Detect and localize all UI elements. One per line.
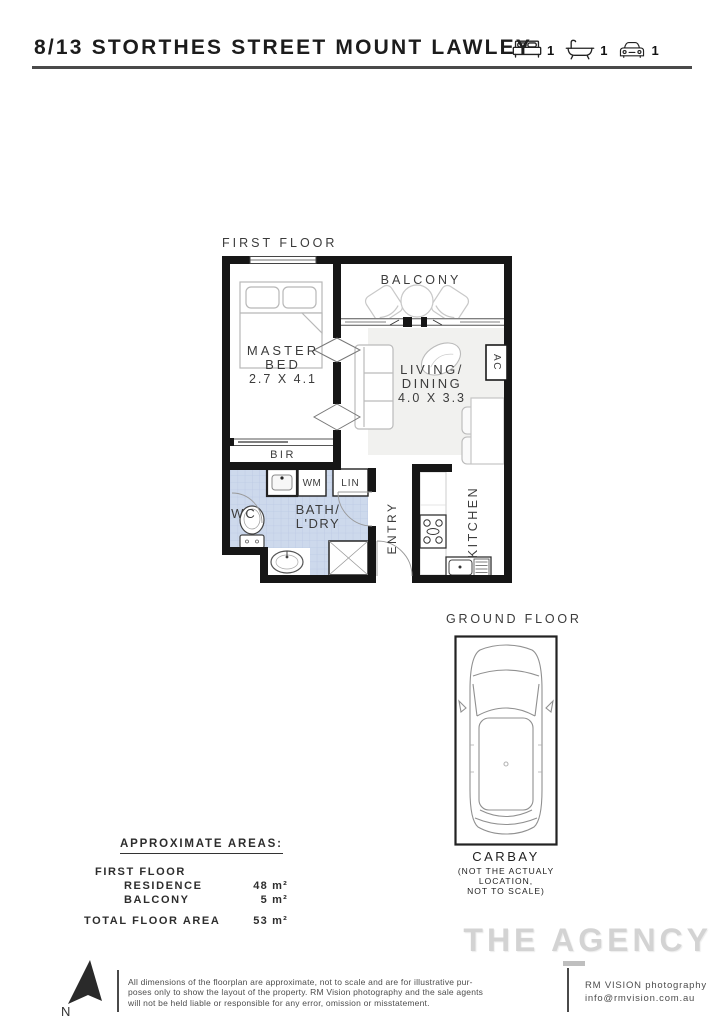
bir-sliding-door [234, 439, 333, 446]
credit-line-2: info@rmvision.com.au [585, 992, 707, 1005]
north-arrow-icon: N [58, 956, 122, 1020]
living-label-2: DINING [402, 376, 463, 391]
footer-divider-left [117, 970, 119, 1012]
bedroom-window [250, 257, 316, 264]
feature-icons-row: 1 1 1 [512, 37, 665, 63]
area-row-first-floor: FIRST FLOOR [95, 866, 186, 878]
car-top-view [459, 645, 553, 834]
balcony-sliding-doors [341, 317, 504, 327]
bath-icon [565, 38, 595, 62]
car-icon [618, 38, 646, 62]
carbay-note-line3: NOT TO SCALE) [430, 886, 582, 896]
north-label: N [61, 1004, 70, 1019]
carbay-diagram [448, 628, 568, 850]
first-floor-plan: AC BALCONY MASTER BED 2.7 X 4.1 LIVING/ … [218, 252, 516, 592]
ac-label: AC [491, 354, 502, 371]
bir-label: BIR [270, 449, 296, 461]
dining-set [462, 398, 504, 464]
floorplan-page: 8/13 STORTHES STREET MOUNT LAWLEY 1 1 [0, 0, 725, 1024]
carbay-note-line1: (NOT THE ACTUALY [430, 866, 582, 876]
master-bed-label-2: BED [265, 357, 301, 372]
shower [329, 541, 368, 575]
disclaimer-line-2: poses only to show the layout of the pro… [128, 987, 483, 997]
sofa-furniture [355, 345, 393, 429]
area-row-residence: RESIDENCE [124, 880, 203, 892]
vanity-basin [268, 548, 310, 575]
entry-label: ENTRY [385, 502, 399, 555]
disclaimer-line-1: All dimensions of the floorplan are appr… [128, 977, 483, 987]
agency-logo-underline [563, 961, 585, 966]
wc-label: WC [231, 506, 257, 521]
car-count: 1 [651, 43, 658, 58]
credit-line-1: RM VISION photography [585, 979, 707, 992]
stove-cooktop [420, 515, 446, 548]
first-floor-label: FIRST FLOOR [222, 236, 337, 250]
wm-label: WM [303, 478, 322, 489]
lin-label: LIN [341, 478, 360, 489]
area-row-total: TOTAL FLOOR AREA [84, 915, 220, 927]
areas-heading: APPROXIMATE AREAS: [120, 838, 283, 854]
ac-unit: AC [486, 345, 507, 380]
photography-credit: RM VISION photography info@rmvision.com.… [585, 979, 707, 1005]
header-rule [32, 66, 692, 69]
area-value-total: 53 m² [228, 915, 288, 927]
disclaimer-line-3: will not be held liable or responsible f… [128, 998, 483, 1008]
area-row-balcony: BALCONY [124, 894, 190, 906]
bath-count: 1 [600, 43, 607, 58]
ground-floor-label: GROUND FLOOR [446, 612, 570, 626]
master-bed-label-1: MASTER [247, 343, 319, 358]
carbay-label: CARBAY [446, 849, 566, 864]
balcony-label: BALCONY [381, 273, 462, 287]
area-value-residence: 48 m² [228, 880, 288, 892]
living-dims: 4.0 X 3.3 [398, 391, 466, 405]
agency-logo: THE AGENCY [458, 922, 712, 959]
bath-label-1: BATH/ [296, 502, 341, 517]
bed-count: 1 [547, 43, 554, 58]
disclaimer-text: All dimensions of the floorplan are appr… [128, 977, 483, 1008]
footer-divider-right [567, 968, 569, 1012]
kitchen-sink [446, 557, 491, 578]
laundry-trough [267, 469, 297, 496]
living-label-1: LIVING/ [400, 362, 464, 377]
kitchen-label: KITCHEN [466, 486, 480, 558]
area-value-balcony: 5 m² [228, 894, 288, 906]
page-title: 8/13 STORTHES STREET MOUNT LAWLEY [34, 36, 532, 60]
bath-label-2: L'DRY [296, 516, 340, 531]
master-bed-dims: 2.7 X 4.1 [249, 372, 317, 386]
carbay-note-line2: LOCATION, [430, 876, 582, 886]
bed-icon [512, 38, 542, 62]
